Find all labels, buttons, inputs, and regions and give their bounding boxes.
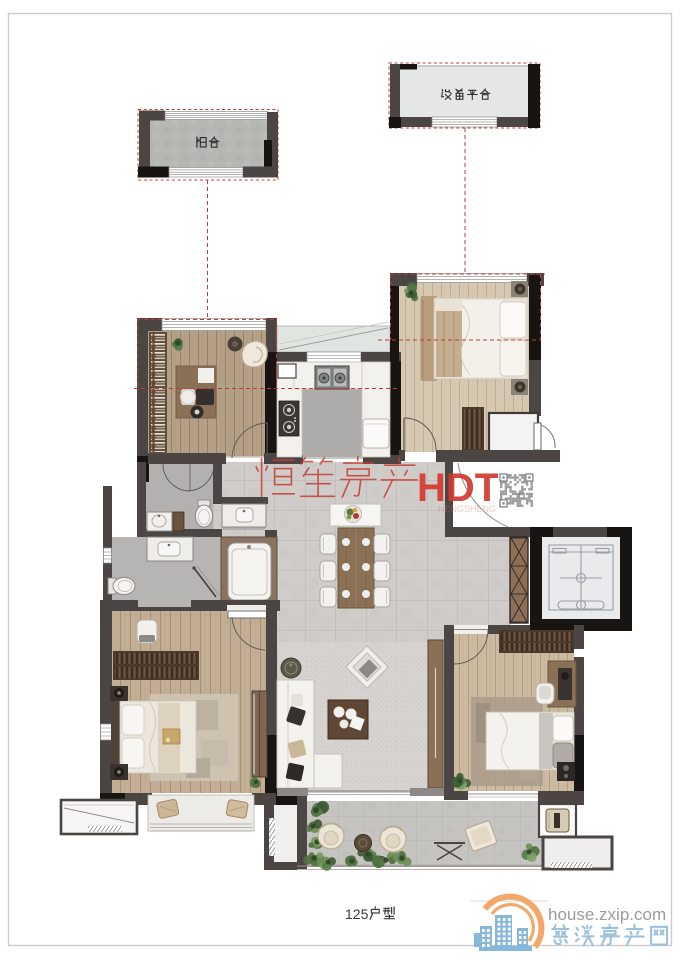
svg-text:house.zxip.com: house.zxip.com	[548, 905, 666, 924]
svg-text:125: 125	[345, 906, 369, 922]
svg-text:HENGSHENG: HENGSHENG	[438, 504, 496, 514]
